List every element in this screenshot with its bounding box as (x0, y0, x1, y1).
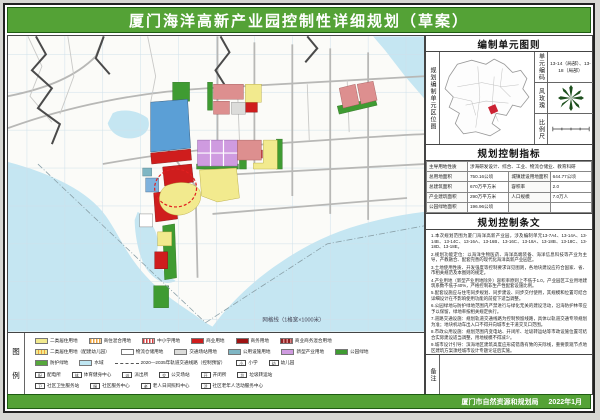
legend-item: 服社区服务中心 (90, 383, 130, 389)
legend-label: 垃圾转运站 (249, 372, 272, 378)
provision-paragraph: 3.土地使用性质、开发强度等控制要求详见图则，各地块建设应符合国家、省、市相关规… (431, 265, 587, 276)
legend-item: 防护绿地 (35, 360, 68, 366)
legend-swatch-cyan (79, 360, 92, 366)
indicator-label: 主导用地性质 (427, 162, 468, 172)
legend-item: 2020—2035年轨道交通线路（控制预留） (115, 360, 226, 366)
table-row: 产业建筑面积 290万平方米 人口规模 7.0万人 (427, 192, 592, 202)
city-outline-map (441, 55, 533, 141)
legend-swatch-yellow (35, 338, 48, 344)
provisions-text: 1.本次规划范围为厦门海洋高新产业园，涉及编制单元13-7A4、13-14A、1… (426, 230, 592, 355)
legend-item: 交通场站用地 (174, 349, 217, 355)
legend-swatch-box: 交 (159, 372, 169, 378)
legend-item: 交公交场站 (159, 372, 189, 378)
legend-swatch-white (121, 349, 134, 355)
indicator-value: 涉海研发设计、综合、工业、物流仓储业、教育科研 (468, 162, 592, 172)
legend-label: 公用设施用地 (243, 349, 271, 355)
legend-item: 卫社区卫生服务站 (35, 383, 79, 389)
legend-item: 商业商务混合用地 (280, 338, 332, 344)
unit-section-header: 编制单元图则 (426, 36, 592, 52)
indicator-value: 7.0万人 (550, 192, 591, 202)
scalebar-label: 比例尺 (537, 119, 546, 140)
legend-label: 商业用地 (206, 338, 224, 344)
unit-location-section: 规划编制单元区位图 (426, 52, 592, 145)
provision-paragraph: 5.配套设施应与住宅同步规划、同步建设、同步交付使用，其规模和位置可结合详细设计… (431, 290, 587, 301)
legend-item: 幼幼儿园 (269, 360, 295, 366)
indicator-value: 196.96公顷 (468, 202, 509, 212)
legend-item: 水域 (79, 360, 103, 366)
plan-sheet: 厦门海洋高新产业园控制性详细规划（草案） (0, 0, 600, 420)
legend-rows: 二类居住用地商住混合用地中小学用地商业用地商务用地商业商务混合用地二类居住用地（… (25, 333, 424, 394)
legend-swatch-darkred (236, 338, 249, 344)
legend-swatch-box: 卫 (35, 383, 45, 389)
grid-note: 网格线（1格宽×1000米） (262, 316, 324, 324)
indicator-label: 总用地面积 (427, 172, 468, 182)
legend-swatch-box: 配 (35, 372, 45, 378)
legend-swatch-stripe-red (142, 338, 155, 344)
legend-label: 社区卫生服务站 (47, 383, 79, 389)
legend: 图 例 二类居住用地商住混合用地中小学用地商业用地商务用地商业商务混合用地二类居… (7, 333, 425, 395)
legend-label: 幼儿园 (281, 360, 295, 366)
legend-row: 配配电所体体育健身中心派派出所交公交场站开开闭所垃垃圾转运站 (35, 372, 418, 378)
unit-side-label: 规划编制单元区位图 (428, 67, 437, 130)
windrose-icon (558, 85, 584, 111)
table-row: 主导用地性质 涉海研发设计、综合、工业、物流仓储业、教育科研 (427, 162, 592, 172)
indicator-label (509, 202, 550, 212)
legend-row: 二类居住用地商住混合用地中小学用地商业用地商务用地商业商务混合用地 (35, 338, 418, 344)
legend-item: 公园绿地 (335, 349, 368, 355)
windrose-cell: 风玫瑰 (535, 83, 593, 114)
legend-label: 开闭所 (213, 372, 227, 378)
legend-item: 派派出所 (122, 372, 148, 378)
legend-item: 老老人日间照料中心 (141, 383, 190, 389)
parcel-logistics (140, 214, 153, 227)
unit-code-cell: 单元编码 13-14（局部）、13-18（局部） (535, 52, 593, 83)
legend-item: 体体育健身中心 (72, 372, 112, 378)
page-title: 厦门海洋高新产业园控制性详细规划（草案） (7, 7, 591, 33)
legend-label: 新型产业用地 (296, 349, 324, 355)
provision-paragraph: 1.本次规划范围为厦门海洋高新产业园，涉及编制单元13-7A4、13-14A、1… (431, 233, 587, 250)
windrose-label: 风玫瑰 (537, 88, 546, 109)
legend-item: 商住混合用地 (89, 338, 132, 344)
provision-paragraph: 8.市政公用设施：规划范围内变电站、开闭所、垃圾转运站等市政设施位置可结合实际建… (431, 329, 587, 340)
indicator-value: 2.0 (550, 182, 591, 192)
planning-map-canvas: 网格线（1格宽×1000米） (8, 36, 424, 332)
legend-swatch-box: 小 (236, 360, 246, 366)
legend-row: 防护绿地水域2020—2035年轨道交通线路（控制预留）小小学幼幼儿园 (35, 360, 418, 366)
legend-item: 新型产业用地 (281, 349, 324, 355)
legend-swatch-violet (281, 349, 294, 355)
legend-label: 体育健身中心 (84, 372, 112, 378)
legend-item: 商业用地 (191, 338, 224, 344)
provision-paragraph: 6.公园绿地与防护绿地范围内严禁进行与绿化无关的建设活动，沿海防护林带应予以保留… (431, 303, 587, 314)
unit-code-label: 单元编码 (537, 53, 546, 81)
legend-label: 商务用地 (251, 338, 269, 344)
legend-label: 水域 (94, 360, 103, 366)
unit-location-minimap (440, 52, 534, 144)
legend-item: 配配电所 (35, 372, 61, 378)
legend-label: 商业商务混合用地 (295, 338, 332, 344)
legend-side-char-1: 图 (12, 346, 20, 357)
legend-label: 公园绿地 (350, 349, 368, 355)
legend-item: 开开闭所 (201, 372, 227, 378)
legend-label: 防护绿地 (50, 360, 68, 366)
legend-side-char-2: 例 (12, 370, 20, 381)
legend-swatch-box: 幼 (269, 360, 279, 366)
indicator-value: 750.16公顷 (468, 172, 509, 182)
table-row: 总用地面积 750.16公顷 城镇建设用地面积 644.77公顷 (427, 172, 592, 182)
legend-label: 二类居住用地（配建幼儿园） (50, 349, 110, 355)
footer-bar: 厦门市自然资源和规划局 2022年1月 (7, 394, 591, 409)
parcel-transport (231, 102, 245, 114)
indicator-label: 产业建筑面积 (427, 192, 468, 202)
legend-swatch-box: 体 (72, 372, 82, 378)
footer-date: 2022年1月 (549, 397, 582, 407)
legend-label: 商住混合用地 (104, 338, 132, 344)
indicator-value (550, 202, 591, 212)
legend-item: 小小学 (236, 360, 257, 366)
legend-swatch-rail (115, 363, 139, 364)
table-row: 总建筑面积 670万平方米 容积率 2.0 (427, 182, 592, 192)
provision-paragraph: 4.产业用地（新型产业用地除外）容积率原则上不低于1.0，产业园区工业用地建筑系… (431, 278, 587, 289)
unit-meta-column: 单元编码 13-14（局部）、13-18（局部） 风玫瑰 (534, 52, 593, 144)
right-panel: 编制单元图则 规划编制单元区位图 (425, 35, 593, 395)
indicators-header: 规划控制指标 (426, 145, 592, 161)
legend-swatch-box: 开 (201, 372, 211, 378)
violet-parcels (198, 140, 238, 166)
legend-item: 二类居住用地 (35, 338, 78, 344)
indicators-table: 主导用地性质 涉海研发设计、综合、工业、物流仓储业、教育科研 总用地面积 750… (426, 161, 592, 214)
legend-label: 社区老年人活动服务中心 (213, 383, 264, 389)
legend-swatch-green (335, 349, 348, 355)
legend-label: 社区服务中心 (102, 383, 130, 389)
indicator-label: 容积率 (509, 182, 550, 192)
table-row: 公园绿地面积 196.96公顷 (427, 202, 592, 212)
parcel-utility (143, 168, 152, 176)
indicator-label: 城镇建设用地面积 (509, 172, 550, 182)
legend-item: 商务用地 (236, 338, 269, 344)
indicator-label: 总建筑面积 (427, 182, 468, 192)
note-side-label: 备注 (428, 368, 437, 382)
legend-label: 老人日间照料中心 (153, 383, 190, 389)
legend-swatch-green2 (35, 360, 48, 366)
legend-label: 配电所 (47, 372, 61, 378)
legend-item: 二类居住用地（配建幼儿园） (35, 349, 110, 355)
legend-swatch-box: 老 (141, 383, 151, 389)
legend-item: 公用设施用地 (228, 349, 271, 355)
note-section: 备注 (426, 355, 592, 394)
scalebar-icon (551, 124, 591, 134)
legend-row: 二类居住用地（配建幼儿园）物流仓储用地交通场站用地公用设施用地新型产业用地公园绿… (35, 349, 418, 355)
indicator-value: 644.77公顷 (550, 172, 591, 182)
legend-label: 派出所 (134, 372, 148, 378)
provisions-header: 规划控制条文 (426, 214, 592, 230)
sheet-frame: 厦门海洋高新产业园控制性详细规划（草案） (3, 3, 595, 413)
unit-side-label-col: 规划编制单元区位图 (426, 52, 440, 144)
scalebar-cell: 比例尺 (535, 114, 593, 144)
parcel-blue-large (151, 99, 191, 152)
legend-item: 垃垃圾转运站 (237, 372, 272, 378)
unit-code-value: 13-14（局部）、13-18（局部） (548, 52, 593, 82)
indicator-value: 670万平方米 (468, 182, 509, 192)
provision-paragraph: 7.道路交通设施：规划轨道交通线路为控制预留线路，具体以轨道交通专项规划为准；地… (431, 316, 587, 327)
legend-swatch-teal (228, 349, 241, 355)
indicator-value: 290万平方米 (468, 192, 509, 202)
note-body (440, 355, 592, 394)
provision-paragraph: 9.城市设计引导：滨海地区建筑高度应形成错落有致的天际线，重要景观节点地区建筑方… (431, 342, 587, 353)
legend-label: 交通场站用地 (189, 349, 217, 355)
legend-label: 公交场站 (171, 372, 189, 378)
legend-swatch-box: 派 (122, 372, 132, 378)
legend-swatch-stripe-maroon (280, 338, 293, 344)
indicator-label: 人口规模 (509, 192, 550, 202)
legend-label: 中小学用地 (157, 338, 180, 344)
legend-item: 物流仓储用地 (121, 349, 164, 355)
legend-item: 活社区老年人活动服务中心 (201, 383, 264, 389)
city-boundary (445, 59, 529, 136)
legend-swatch-stripe-yellow (35, 349, 48, 355)
legend-side-label: 图 例 (8, 333, 25, 394)
indicator-label: 公园绿地面积 (427, 202, 468, 212)
legend-swatch-red (191, 338, 204, 344)
legend-swatch-gray (174, 349, 187, 355)
legend-label: 2020—2035年轨道交通线路（控制预留） (141, 360, 226, 366)
legend-label: 二类居住用地 (50, 338, 78, 344)
legend-swatch-stripe-orange (89, 338, 102, 344)
provision-paragraph: 2.规划功能定位：以海洋生物医药、海洋高端装备、海洋信息科技等产业为主导，产教融… (431, 252, 587, 263)
legend-row: 卫社区卫生服务站服社区服务中心老老人日间照料中心活社区老年人活动服务中心 (35, 383, 418, 389)
legend-swatch-box: 垃 (237, 372, 247, 378)
legend-swatch-box: 活 (201, 383, 211, 389)
legend-swatch-box: 服 (90, 383, 100, 389)
planning-map: 网格线（1格宽×1000米） (7, 35, 425, 333)
legend-item: 中小学用地 (142, 338, 180, 344)
legend-label: 小学 (248, 360, 257, 366)
footer-agency: 厦门市自然资源和规划局 (462, 397, 539, 407)
legend-label: 物流仓储用地 (136, 349, 164, 355)
